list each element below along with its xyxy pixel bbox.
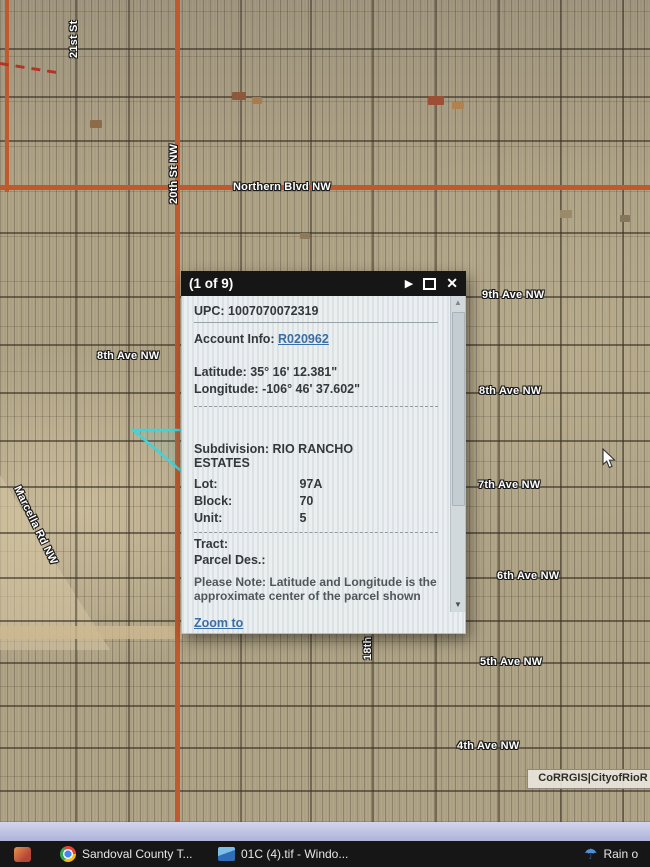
separator: [194, 322, 438, 323]
map-building: [232, 92, 246, 100]
upc-value: 1007070072319: [228, 304, 318, 318]
zoom-to-link-row: Zoom to: [194, 616, 243, 630]
photo-viewer-icon: [218, 847, 235, 861]
map-building: [90, 120, 102, 128]
street-label-8th-ave-nw-left: 8th Ave NW: [97, 350, 159, 362]
popup-body: UPC: 1007070072319 Account Info: R020962…: [181, 296, 466, 634]
block-label: Block:: [194, 494, 296, 508]
map-attribution: CoRRGIS|CityofRioR: [527, 769, 650, 789]
map-street-line: [0, 747, 650, 749]
map-building: [560, 210, 572, 218]
taskbar-app-chrome[interactable]: Sandoval County T...: [60, 841, 193, 867]
map-building: [620, 215, 630, 222]
longitude-row: Longitude: -106° 46' 37.602": [194, 382, 360, 396]
maximize-icon[interactable]: [423, 271, 436, 296]
map-building: [428, 96, 444, 105]
map-street-line: [0, 48, 650, 50]
scroll-up-icon[interactable]: [451, 296, 465, 310]
popup-title-bar[interactable]: (1 of 9): [181, 271, 466, 296]
lot-row: Lot: 97A: [194, 477, 322, 491]
upc-row: UPC: 1007070072319: [194, 304, 318, 318]
unit-row: Unit: 5: [194, 511, 306, 525]
taskbar-weather-widget[interactable]: Rain o: [584, 841, 638, 867]
maximize-glyph: [423, 278, 436, 290]
latitude-value: 35° 16' 12.381": [250, 365, 337, 379]
map-street-line: [0, 705, 650, 707]
street-label-21st-st: 21st St: [68, 21, 80, 58]
lot-label: Lot:: [194, 477, 296, 491]
chrome-icon: [60, 846, 76, 862]
longitude-value: -106° 46' 37.602": [262, 382, 360, 396]
street-label-northern-blvd: Northern Blvd NW: [233, 181, 331, 193]
street-label-6th-ave-nw: 6th Ave NW: [497, 570, 559, 582]
separator: [194, 532, 438, 533]
separator: [194, 406, 438, 407]
taskbar-app-label: Sandoval County T...: [82, 847, 193, 861]
taskbar-app-photos[interactable]: [14, 841, 31, 867]
road-20th-st: [175, 0, 180, 822]
latitude-label: Latitude:: [194, 365, 247, 379]
street-label-9th-ave-nw: 9th Ave NW: [482, 289, 544, 301]
zoom-to-link[interactable]: Zoom to: [194, 616, 243, 630]
parcel-info-popup: (1 of 9) UPC: 1007070072319 Account Info…: [181, 271, 466, 634]
map-street-line: [622, 0, 624, 822]
scroll-down-icon[interactable]: [451, 598, 465, 612]
subdivision-row: Subdivision: RIO RANCHO ESTATES: [194, 442, 399, 470]
map-street-line: [498, 0, 500, 822]
close-icon[interactable]: [446, 271, 458, 296]
photos-app-icon: [14, 847, 31, 862]
lot-value: 97A: [299, 477, 322, 491]
map-dirt-road: [0, 626, 182, 639]
tract-row: Tract:: [194, 537, 228, 551]
upc-label: UPC:: [194, 304, 225, 318]
map-street-line: [0, 96, 650, 98]
street-label-5th-ave-nw: 5th Ave NW: [480, 656, 542, 668]
map-street-line: [0, 662, 650, 664]
map-building: [300, 233, 310, 239]
scroll-thumb[interactable]: [452, 312, 465, 506]
street-label-7th-ave-nw: 7th Ave NW: [478, 479, 540, 491]
parcel-des-row: Parcel Des.:: [194, 553, 266, 567]
latitude-row: Latitude: 35° 16' 12.381": [194, 365, 337, 379]
map-street-line: [0, 232, 650, 234]
account-info-row: Account Info: R020962: [194, 332, 329, 346]
unit-label: Unit:: [194, 511, 296, 525]
boundary-dashed-line: [0, 62, 61, 75]
street-label-8th-ave-nw: 8th Ave NW: [479, 385, 541, 397]
parcel-des-label: Parcel Des.:: [194, 553, 266, 567]
block-value: 70: [299, 494, 313, 508]
weather-label: Rain o: [603, 847, 638, 861]
windows-taskbar: Sandoval County T... 01C (4).tif - Windo…: [0, 841, 650, 867]
popup-scrollbar[interactable]: [450, 296, 465, 612]
longitude-label: Longitude:: [194, 382, 259, 396]
taskbar-app-photo-viewer[interactable]: 01C (4).tif - Windo...: [218, 841, 348, 867]
window-bottom-strip: [0, 822, 650, 841]
map-street-line: [75, 0, 77, 822]
street-label-18th-st: 18th: [362, 637, 374, 660]
map-street-line: [0, 790, 650, 792]
map-street-line: [0, 140, 650, 142]
map-building: [252, 97, 262, 104]
next-result-icon[interactable]: [405, 271, 413, 296]
account-info-label: Account Info:: [194, 332, 275, 346]
unit-value: 5: [299, 511, 306, 525]
road-left-edge: [5, 0, 9, 192]
subdivision-label: Subdivision:: [194, 442, 269, 456]
street-label-4th-ave-nw: 4th Ave NW: [457, 740, 519, 752]
map-street-line: [128, 0, 130, 822]
taskbar-app-label: 01C (4).tif - Windo...: [241, 847, 348, 861]
tract-label: Tract:: [194, 537, 228, 551]
map-building: [452, 102, 464, 109]
map-street-line: [560, 0, 562, 822]
block-row: Block: 70: [194, 494, 313, 508]
popup-note: Please Note: Latitude and Longitude is t…: [194, 575, 446, 611]
street-label-20th-st-nw: 20th St NW: [168, 144, 180, 204]
account-info-link[interactable]: R020962: [278, 332, 329, 346]
umbrella-icon: [584, 847, 597, 862]
popup-title: (1 of 9): [189, 276, 395, 291]
